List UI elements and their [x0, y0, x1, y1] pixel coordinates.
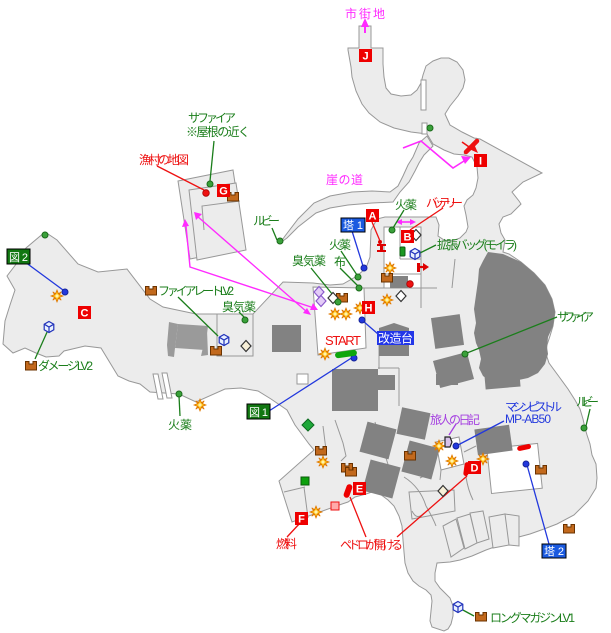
svg-text:C: C: [81, 308, 89, 320]
svg-text:塔2: 塔2: [544, 545, 564, 558]
svg-text:D: D: [471, 463, 479, 475]
svg-text:市街地: 市街地: [345, 6, 385, 21]
svg-text:サファイア: サファイア: [557, 310, 594, 324]
svg-text:MP-AB50: MP-AB50: [505, 412, 551, 426]
svg-text:臭気薬: 臭気薬: [292, 253, 326, 268]
svg-text:燃料: 燃料: [276, 536, 297, 551]
svg-text:G: G: [219, 186, 228, 198]
svg-text:火薬: 火薬: [395, 198, 417, 212]
svg-text:※屋根の近く: ※屋根の近く: [186, 125, 250, 139]
svg-text:臭気薬: 臭気薬: [222, 299, 256, 314]
svg-text:拡張バッグ(モイラ): 拡張バッグ(モイラ): [437, 238, 517, 252]
svg-text:F: F: [298, 514, 305, 526]
svg-text:ロングマガジンLV1: ロングマガジンLV1: [490, 611, 575, 625]
svg-text:図1: 図1: [249, 406, 268, 419]
svg-text:崖の道: 崖の道: [326, 173, 363, 187]
svg-text:ダメージLV2: ダメージLV2: [38, 358, 93, 373]
svg-text:漁村の地図: 漁村の地図: [139, 153, 189, 167]
svg-text:B: B: [404, 232, 412, 244]
svg-text:サファイア: サファイア: [188, 111, 236, 125]
svg-text:H: H: [365, 303, 373, 315]
svg-text:ペドロが開ける: ペドロが開ける: [340, 537, 403, 552]
svg-text:I: I: [479, 156, 482, 168]
svg-text:A: A: [369, 211, 377, 223]
svg-text:塔1: 塔1: [343, 219, 363, 232]
svg-text:ルビー: ルビー: [576, 395, 599, 409]
svg-text:布: 布: [334, 255, 346, 269]
svg-text:バッテリー: バッテリー: [426, 196, 463, 210]
svg-text:J: J: [362, 51, 368, 63]
svg-text:旅人の日記: 旅人の日記: [430, 412, 480, 427]
svg-text:図2: 図2: [9, 251, 28, 264]
svg-text:火薬: 火薬: [329, 238, 351, 252]
svg-text:ファイアレートLV2: ファイアレートLV2: [158, 284, 234, 298]
svg-text:火薬: 火薬: [168, 418, 192, 432]
svg-text:E: E: [356, 484, 363, 496]
svg-text:ルビー: ルビー: [253, 214, 280, 228]
svg-text:START: START: [325, 333, 361, 348]
svg-text:改造台: 改造台: [378, 331, 413, 346]
